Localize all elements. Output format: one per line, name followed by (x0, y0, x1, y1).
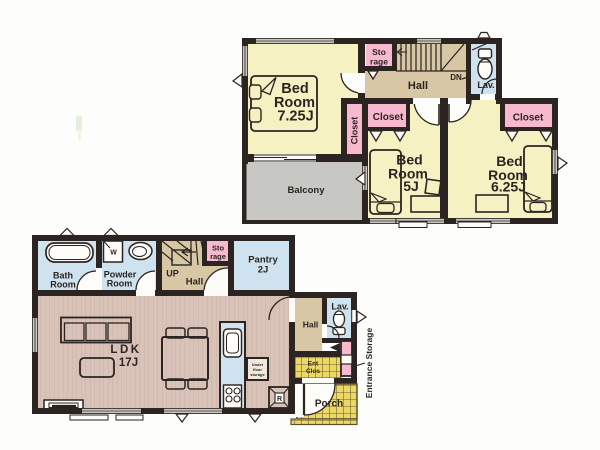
svg-text:Lav.: Lav. (477, 80, 494, 90)
svg-text:R: R (277, 396, 282, 403)
svg-text:Hall: Hall (303, 320, 319, 330)
svg-text:Hall: Hall (408, 80, 428, 92)
svg-text:storage: storage (250, 372, 265, 377)
svg-text:Porch: Porch (315, 399, 343, 410)
svg-text:2J: 2J (258, 265, 269, 276)
svg-text:DN: DN (450, 73, 462, 82)
svg-text:Ent: Ent (308, 361, 319, 368)
svg-text:Sto: Sto (372, 47, 386, 57)
svg-text:Closet: Closet (350, 117, 360, 145)
svg-text:Entrance Storage: Entrance Storage (364, 328, 374, 399)
svg-text:Closet: Closet (513, 113, 544, 124)
svg-text:Room: Room (107, 279, 133, 289)
svg-text:17J: 17J (119, 357, 138, 369)
svg-text:LDK: LDK (110, 344, 141, 356)
svg-text:Clos: Clos (306, 368, 320, 375)
svg-text:7.25J: 7.25J (277, 109, 313, 125)
svg-text:5J: 5J (403, 178, 419, 194)
svg-text:Lav.: Lav. (331, 302, 348, 312)
svg-text:rage: rage (210, 252, 226, 261)
svg-text:Hall: Hall (186, 277, 203, 288)
svg-text:Closet: Closet (373, 112, 404, 123)
svg-text:Room: Room (50, 280, 76, 290)
svg-text:6.25J: 6.25J (491, 179, 526, 195)
svg-text:W: W (110, 250, 117, 257)
svg-text:UP: UP (166, 269, 179, 279)
svg-text:Balcony: Balcony (288, 185, 326, 196)
svg-text:rage: rage (370, 57, 388, 67)
